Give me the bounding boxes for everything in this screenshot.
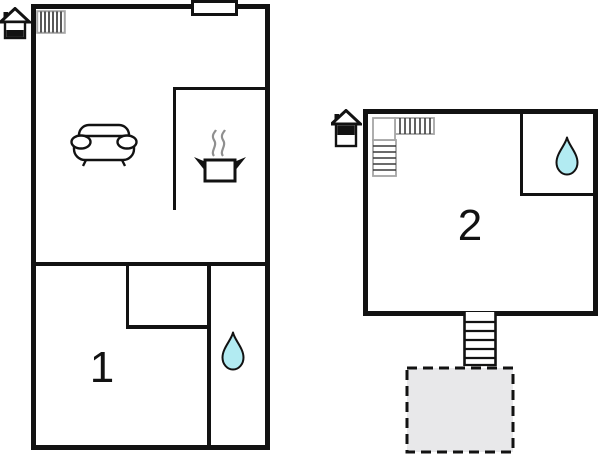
unit-1-hall-wall-bottom: [126, 325, 211, 329]
floor-plan: 1: [0, 0, 600, 454]
unit-1-outer-walls: [31, 4, 270, 450]
unit-2-label: 2: [450, 204, 490, 248]
terrace-dashed-area: [404, 365, 516, 454]
cooking-pot-icon: [192, 126, 248, 184]
unit-1-hall-wall-left: [126, 262, 129, 329]
staircase-icon: [36, 10, 66, 34]
unit-1-bathroom-wall: [207, 262, 211, 445]
water-drop-icon: [555, 136, 579, 176]
unit-2-bathroom-wall-left: [520, 114, 523, 196]
sofa-icon: [68, 122, 140, 168]
unit-1-label: 1: [82, 346, 122, 390]
unit-1-kitchen-wall-top: [173, 87, 265, 90]
entrance-house-icon-upper-floor: [331, 109, 362, 149]
entrance-house-icon-ground-floor: [0, 7, 31, 41]
l-shaped-staircase-icon: [372, 117, 436, 178]
unit-2-bathroom-wall-bottom: [520, 193, 593, 196]
water-drop-icon: [221, 331, 245, 371]
unit-1-kitchen-wall-left: [173, 87, 176, 210]
chimney-block: [191, 0, 238, 16]
unit-1-mid-divider-wall: [36, 262, 265, 266]
external-stairs-icon: [461, 312, 499, 368]
